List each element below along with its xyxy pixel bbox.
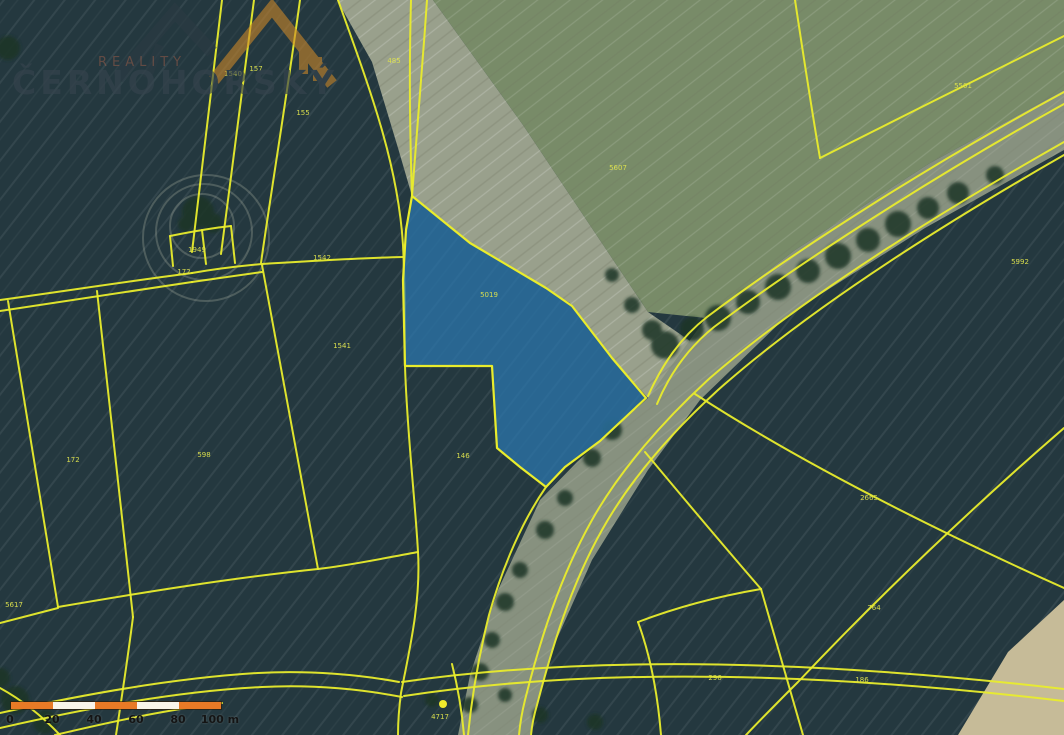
parcel-number-label: 5607 xyxy=(609,164,627,172)
parcel-number-label: 598 xyxy=(197,451,210,459)
scale-bar-segment xyxy=(11,702,53,709)
scale-bar-tick: 100 m xyxy=(200,713,240,726)
parcel-number-label: 5501 xyxy=(954,82,972,90)
brand-watermark: REALITY ČERNOHORSKÝ xyxy=(0,0,348,97)
parcel-number-label: 1949 xyxy=(188,246,206,254)
scale-bar: 020406080100 m xyxy=(10,701,250,727)
map-viewport[interactable]: 1540157155485560755015992194917215421541… xyxy=(0,0,1064,735)
scale-bar-tick: 0 xyxy=(0,713,30,726)
parcel-number-label: 5019 xyxy=(480,291,498,299)
parcel-number-label: 186 xyxy=(855,676,869,684)
parcel-number-label: 2665 xyxy=(860,494,878,502)
parcel-number-label: 146 xyxy=(456,452,470,460)
parcel-number-label: 172 xyxy=(177,268,190,276)
scale-bar-ticks: 020406080100 m xyxy=(10,713,250,727)
parcel-number-label: 764 xyxy=(867,604,881,612)
poi-dot[interactable] xyxy=(439,700,447,708)
scale-bar-tick: 60 xyxy=(116,713,156,726)
aerial-map: 1540157155485560755015992194917215421541… xyxy=(0,0,1064,735)
watermark-brand: ČERNOHORSKÝ xyxy=(12,62,338,97)
scale-bar-segment xyxy=(53,702,95,709)
scale-bar-tick: 40 xyxy=(74,713,114,726)
parcel-number-label: 4717 xyxy=(431,713,449,721)
parcel-number-label: 296 xyxy=(708,674,722,682)
parcel-number-label: 1541 xyxy=(333,342,351,350)
scale-bar-segment xyxy=(179,702,221,709)
parcel-number-label: 485 xyxy=(387,57,400,65)
scale-bar-segment xyxy=(95,702,137,709)
parcel-number-label: 172 xyxy=(66,456,79,464)
scale-bar-tick: 20 xyxy=(32,713,72,726)
scale-bar-segment xyxy=(137,702,179,709)
scale-bar-segments xyxy=(10,701,222,710)
parcel-number-label: 155 xyxy=(296,109,309,117)
parcel-number-label: 5617 xyxy=(5,601,23,609)
scale-bar-tick: 80 xyxy=(158,713,198,726)
parcel-number-label: 5992 xyxy=(1011,258,1029,266)
parcel-number-label: 1542 xyxy=(313,254,331,262)
